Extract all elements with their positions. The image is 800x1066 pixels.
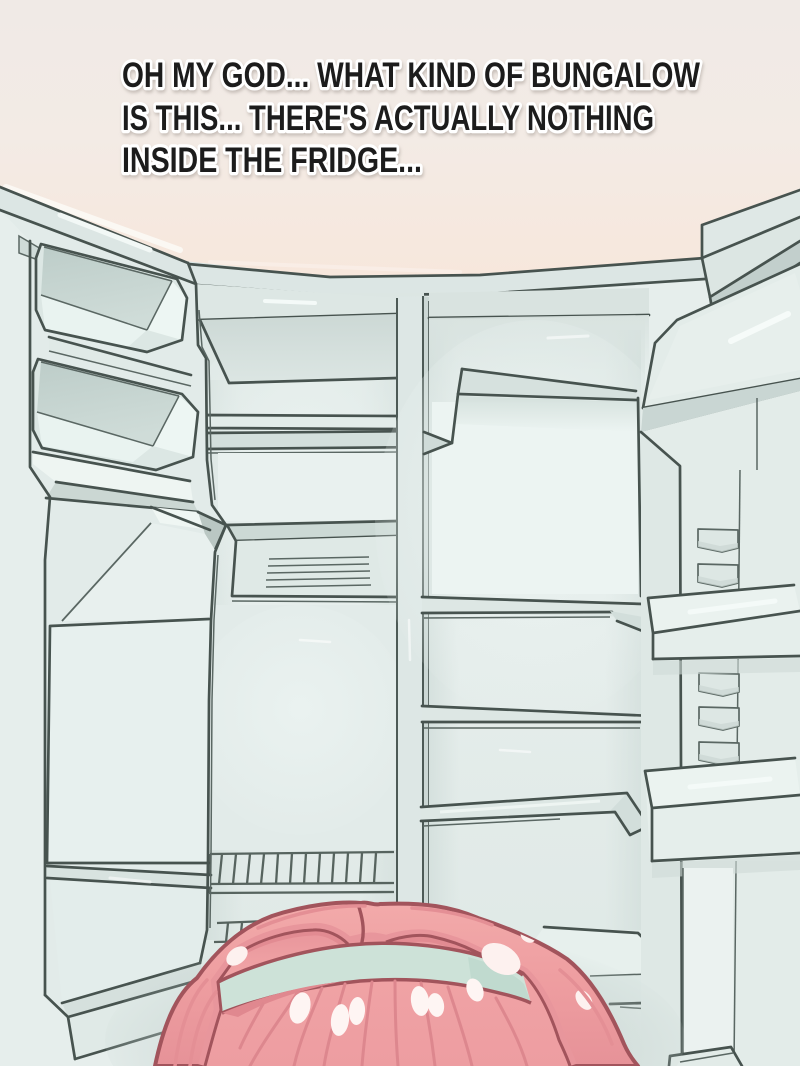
svg-text:OH MY GOD... WHAT KIND OF BUNG: OH MY GOD... WHAT KIND OF BUNGALOW: [122, 56, 700, 95]
svg-text:INSIDE THE FRIDGE...: INSIDE THE FRIDGE...: [122, 141, 422, 180]
svg-text:IS THIS... THERE'S ACTUALLY NO: IS THIS... THERE'S ACTUALLY NOTHING: [122, 99, 654, 138]
